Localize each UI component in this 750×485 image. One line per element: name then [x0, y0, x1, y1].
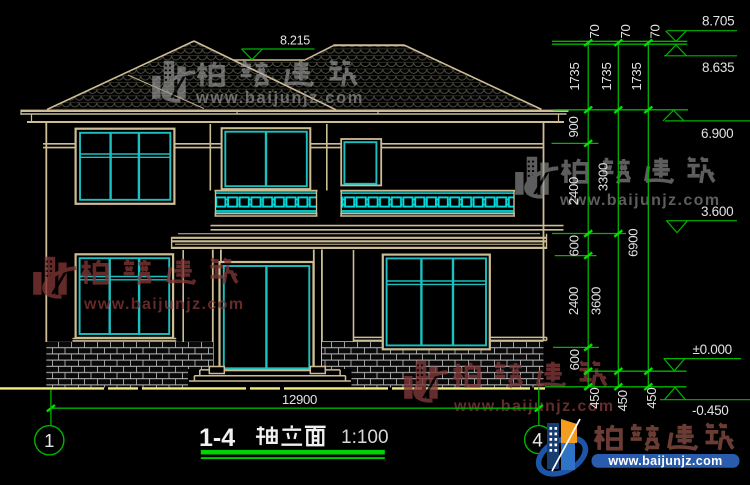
svg-text:-0.450: -0.450 — [692, 403, 728, 418]
svg-text:1735: 1735 — [567, 63, 582, 91]
svg-text:6.900: 6.900 — [701, 126, 733, 141]
svg-text:1: 1 — [44, 430, 54, 451]
svg-text:450: 450 — [644, 388, 659, 409]
svg-text:450: 450 — [587, 388, 602, 409]
svg-text:70: 70 — [587, 24, 602, 38]
svg-text:12900: 12900 — [282, 392, 317, 407]
svg-text:1735: 1735 — [629, 63, 644, 91]
svg-text:4: 4 — [532, 431, 543, 452]
svg-text:1735: 1735 — [599, 63, 614, 91]
svg-text:www.baijunjz.com: www.baijunjz.com — [607, 454, 722, 468]
svg-text:www.baijunjz.com: www.baijunjz.com — [83, 296, 245, 313]
svg-text:3300: 3300 — [595, 163, 610, 191]
svg-text:±0.000: ±0.000 — [693, 342, 732, 357]
svg-text:70: 70 — [618, 24, 633, 38]
svg-text:900: 900 — [566, 116, 581, 137]
svg-text:70: 70 — [647, 24, 662, 38]
svg-text:8.635: 8.635 — [702, 60, 734, 75]
svg-text:3600: 3600 — [589, 287, 604, 315]
svg-text:600: 600 — [566, 235, 581, 256]
svg-text:450: 450 — [615, 390, 630, 411]
svg-text:8.705: 8.705 — [702, 14, 734, 29]
svg-text:3.600: 3.600 — [701, 204, 733, 219]
svg-text:8.215: 8.215 — [280, 34, 310, 48]
svg-text:2400: 2400 — [566, 287, 581, 315]
svg-text:1:100: 1:100 — [341, 427, 389, 448]
svg-text:www.baijunjz.com: www.baijunjz.com — [195, 89, 364, 107]
svg-text:6900: 6900 — [625, 229, 640, 257]
svg-text:www.baijunjz.com: www.baijunjz.com — [559, 192, 721, 209]
svg-text:1-4: 1-4 — [199, 424, 235, 452]
svg-text:2400: 2400 — [566, 177, 581, 205]
svg-text:600: 600 — [567, 349, 582, 370]
